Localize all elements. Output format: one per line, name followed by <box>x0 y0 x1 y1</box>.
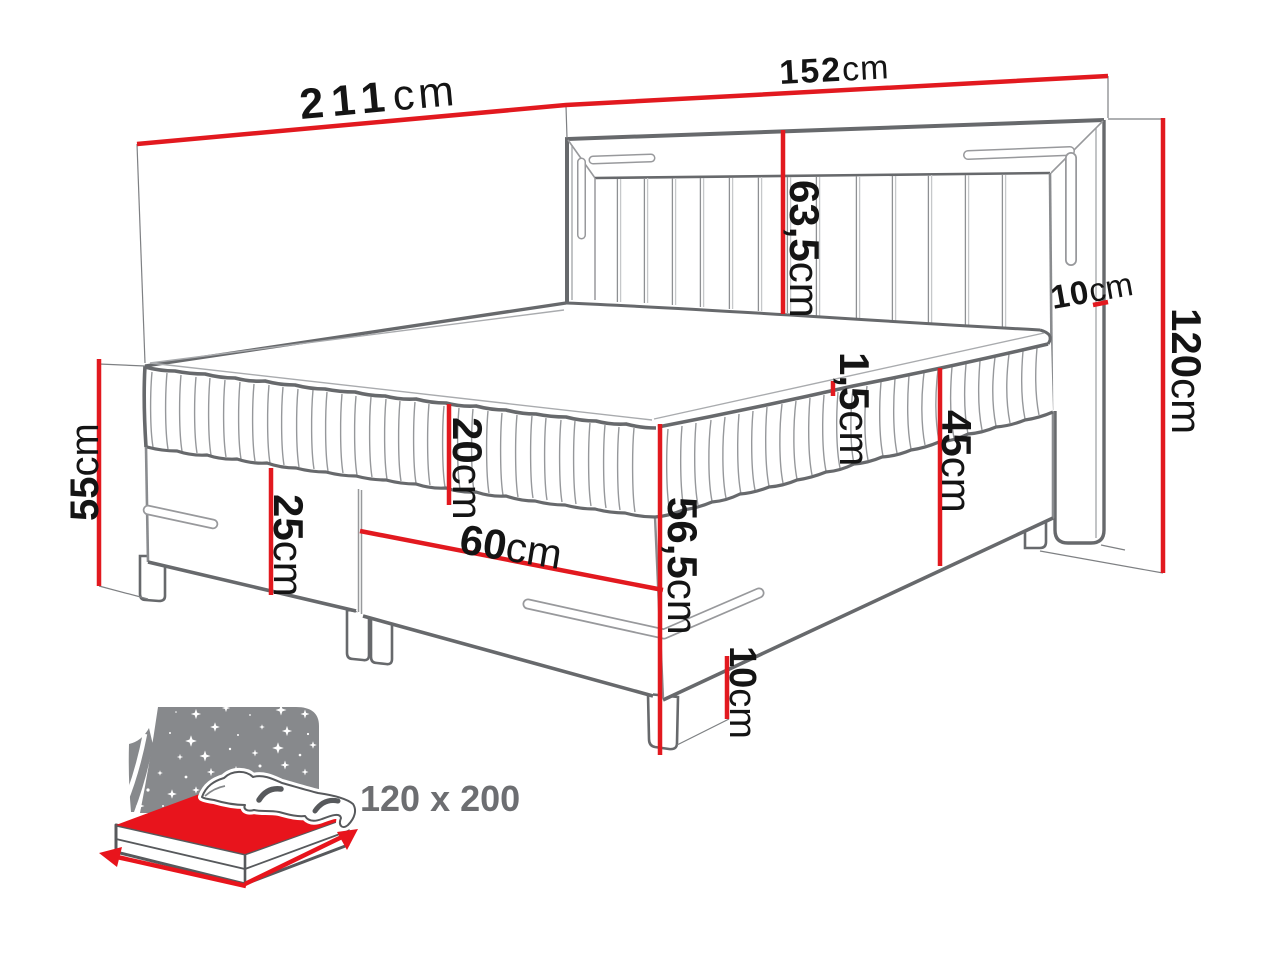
svg-text:45cm: 45cm <box>933 410 980 513</box>
svg-text:120cm: 120cm <box>1163 308 1210 434</box>
svg-text:20cm: 20cm <box>444 417 491 520</box>
svg-text:152cm: 152cm <box>778 48 890 92</box>
svg-text:56,5cm: 56,5cm <box>659 497 706 635</box>
svg-text:63,5cm: 63,5cm <box>781 180 828 318</box>
svg-text:25cm: 25cm <box>265 494 312 597</box>
svg-text:55cm: 55cm <box>63 423 107 521</box>
svg-text:1,5cm: 1,5cm <box>831 352 878 466</box>
svg-text:10cm: 10cm <box>721 646 763 739</box>
svg-text:120 x 200: 120 x 200 <box>360 778 520 819</box>
